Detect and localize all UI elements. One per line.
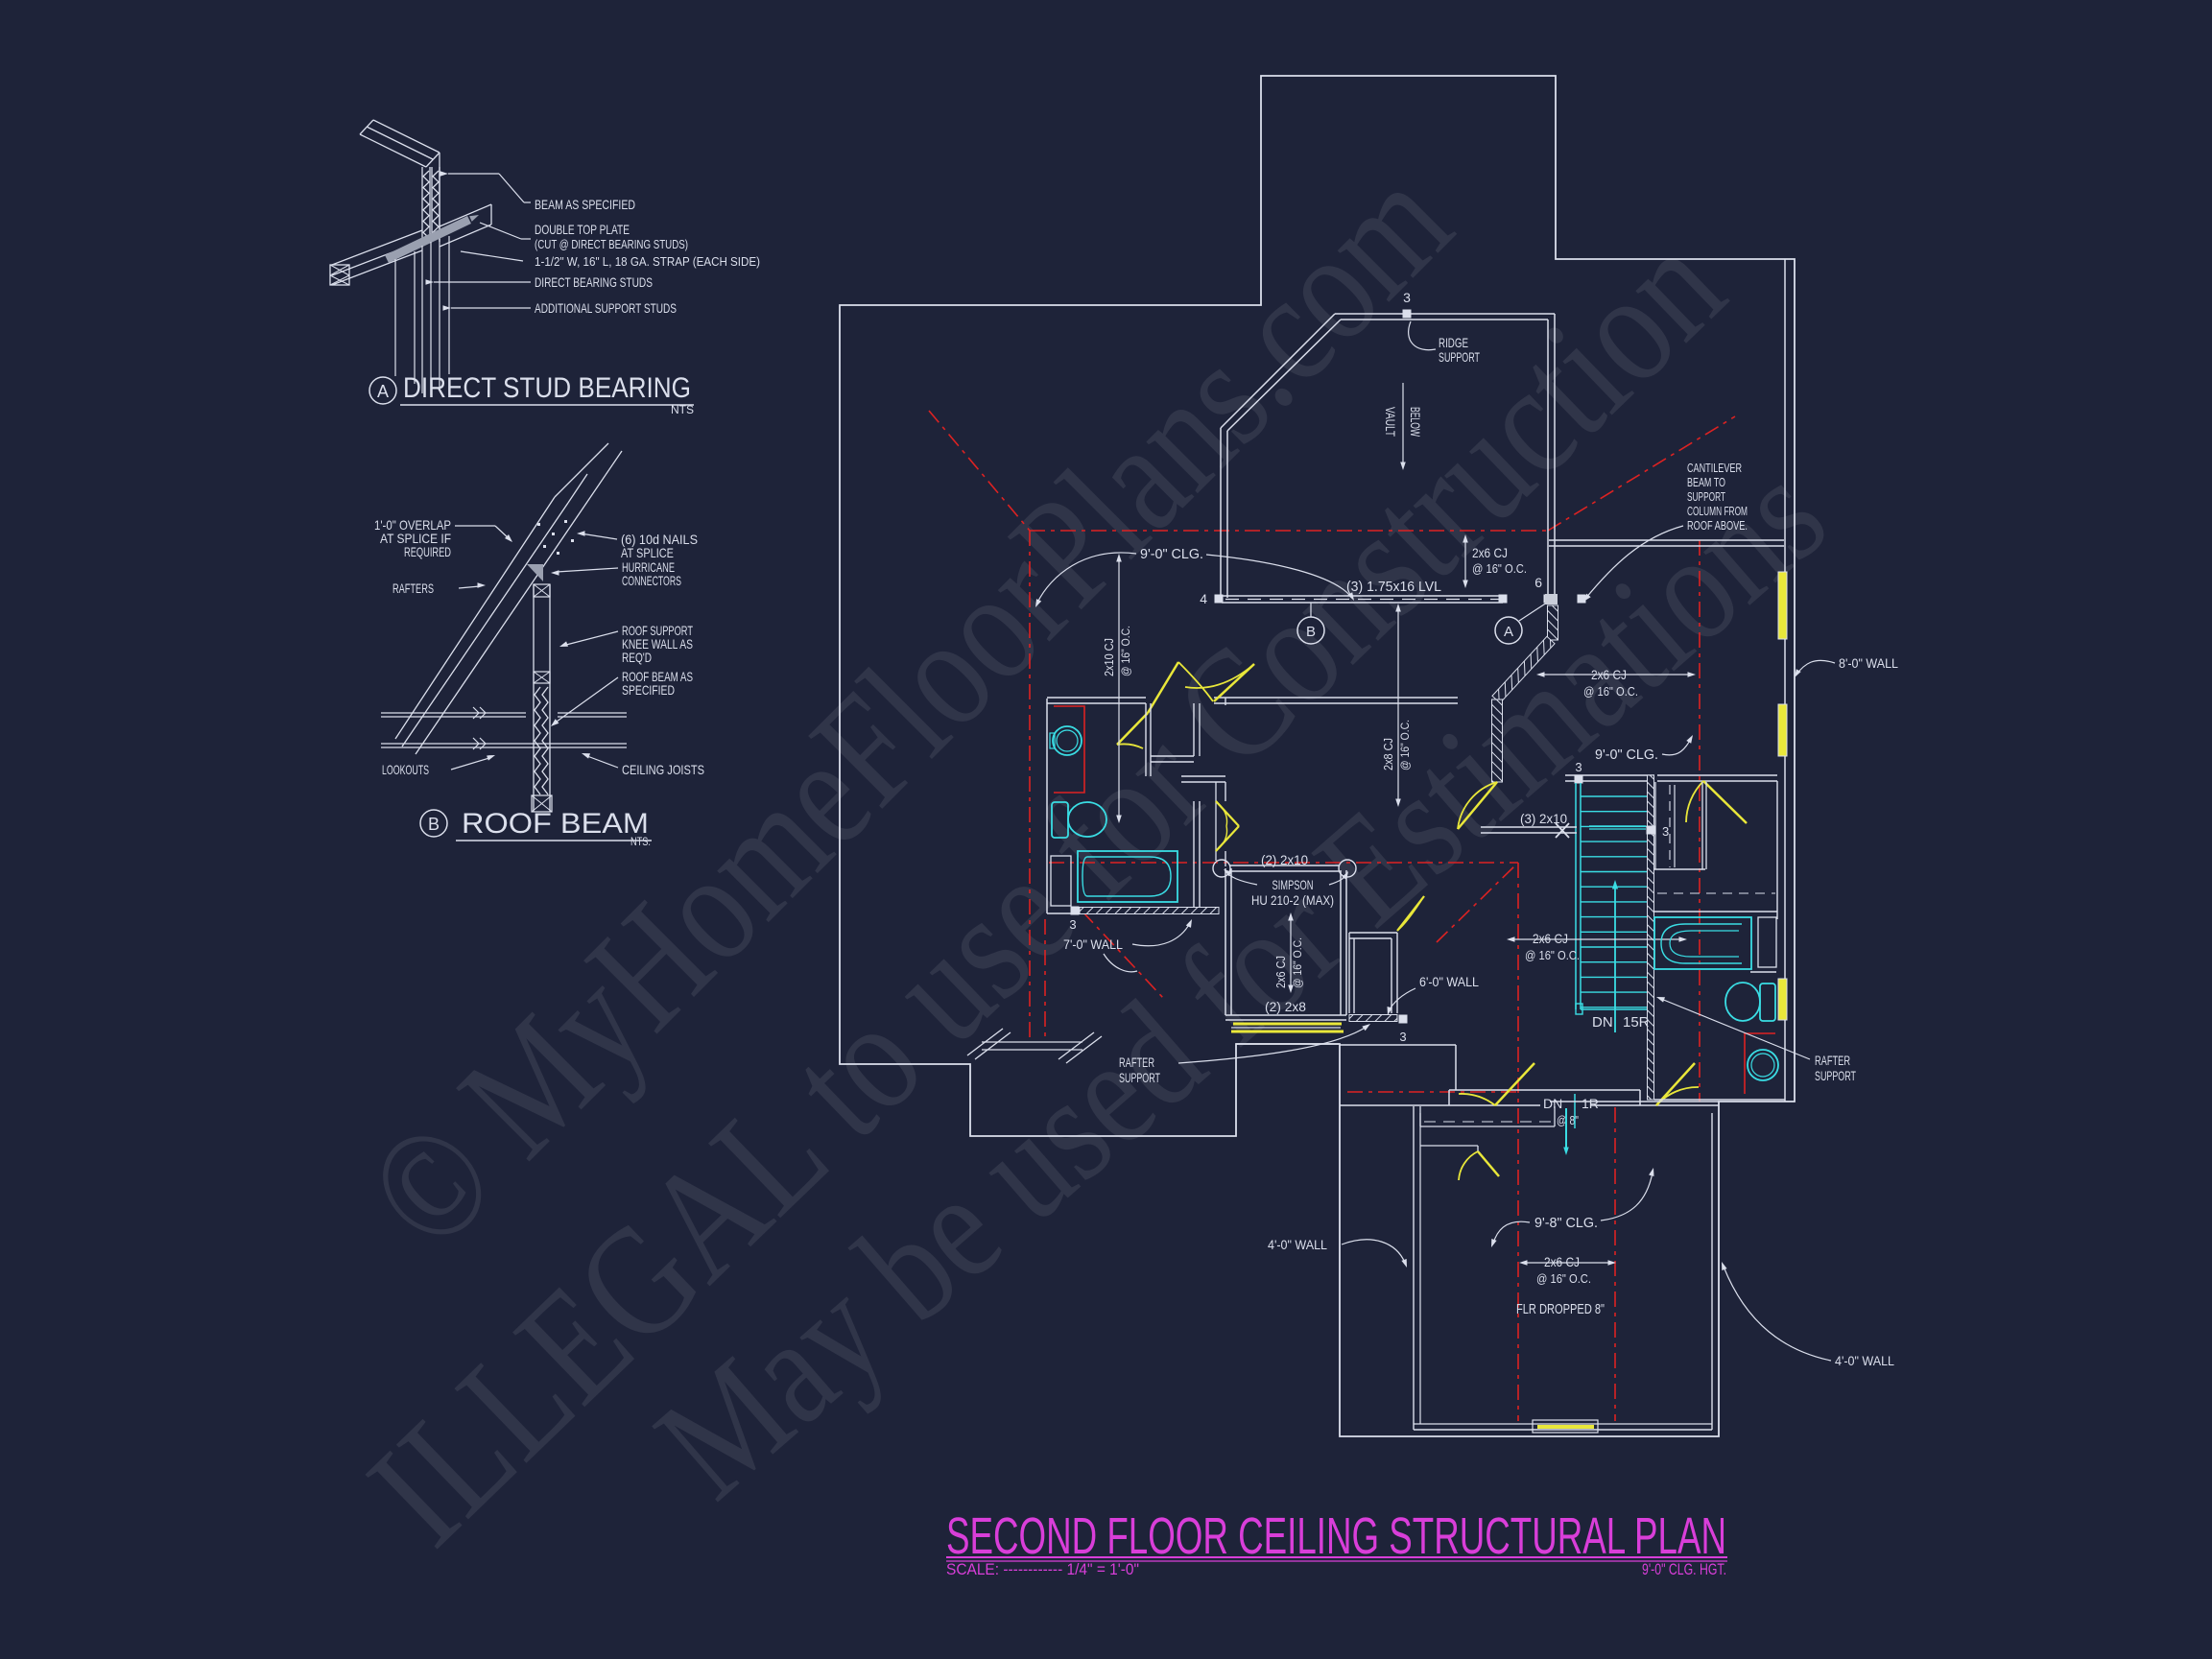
svg-text:@ 16" O.C.: @ 16" O.C.	[1536, 1271, 1591, 1286]
svg-text:RAFTER: RAFTER	[1119, 1055, 1154, 1070]
svg-text:A: A	[1504, 624, 1513, 640]
svg-text:9'-0" CLG. HGT.: 9'-0" CLG. HGT.	[1642, 1560, 1726, 1578]
svg-text:SCALE: ------------ 1/4" = 1'-: SCALE: ------------ 1/4" = 1'-0"	[946, 1560, 1139, 1578]
svg-text:DIRECT STUD BEARING: DIRECT STUD BEARING	[403, 372, 691, 404]
svg-text:4: 4	[1200, 591, 1207, 606]
svg-text:CEILING JOISTS: CEILING JOISTS	[622, 762, 704, 777]
svg-text:3: 3	[1575, 760, 1582, 774]
svg-text:3: 3	[1662, 824, 1669, 839]
svg-text:9'-0" CLG.: 9'-0" CLG.	[1595, 747, 1658, 763]
svg-text:3: 3	[1399, 1030, 1406, 1044]
svg-text:2x6 CJ: 2x6 CJ	[1472, 545, 1508, 560]
svg-text:(3) 2x10: (3) 2x10	[1520, 811, 1567, 826]
svg-text:2x8 CJ: 2x8 CJ	[1381, 738, 1395, 770]
svg-text:4'-0" WALL: 4'-0" WALL	[1268, 1237, 1327, 1252]
svg-text:2x6 CJ: 2x6 CJ	[1533, 931, 1568, 946]
svg-text:SUPPORT: SUPPORT	[1439, 349, 1480, 365]
svg-text:(2) 2x8: (2) 2x8	[1265, 999, 1306, 1014]
svg-text:@ 16" O.C.: @ 16" O.C.	[1525, 948, 1580, 962]
svg-text:RAFTER: RAFTER	[1815, 1053, 1850, 1068]
svg-text:2x6 CJ: 2x6 CJ	[1273, 956, 1288, 988]
svg-text:BEAM TO: BEAM TO	[1687, 475, 1725, 489]
svg-text:RAFTERS: RAFTERS	[392, 581, 434, 596]
svg-text:NTS: NTS	[671, 403, 694, 416]
svg-text:@ 16" O.C.: @ 16" O.C.	[1472, 561, 1527, 576]
svg-text:DIRECT BEARING STUDS: DIRECT BEARING STUDS	[535, 274, 653, 290]
svg-text:NTS.: NTS.	[630, 835, 651, 848]
svg-text:(CUT @ DIRECT BEARING STUDS): (CUT @ DIRECT BEARING STUDS)	[535, 237, 688, 251]
svg-text:15R: 15R	[1623, 1014, 1650, 1031]
svg-text:SIMPSON: SIMPSON	[1272, 877, 1314, 892]
svg-text:(2) 2x10: (2) 2x10	[1261, 852, 1308, 867]
svg-text:CONNECTORS: CONNECTORS	[622, 573, 681, 588]
svg-text:@ 16" O.C.: @ 16" O.C.	[1398, 720, 1412, 770]
svg-text:SUPPORT: SUPPORT	[1815, 1068, 1856, 1083]
svg-text:ROOF BEAM: ROOF BEAM	[462, 808, 649, 840]
svg-text:REQ'D: REQ'D	[622, 650, 652, 665]
svg-text:A: A	[377, 382, 389, 401]
svg-text:@ 16" O.C.: @ 16" O.C.	[1119, 626, 1132, 676]
svg-text:@ 16" O.C.: @ 16" O.C.	[1291, 937, 1304, 988]
svg-text:AT SPLICE: AT SPLICE	[621, 545, 674, 560]
svg-text:REQUIRED: REQUIRED	[404, 544, 451, 559]
svg-text:(3) 1.75x16 LVL: (3) 1.75x16 LVL	[1346, 579, 1441, 595]
svg-text:B: B	[1306, 624, 1316, 640]
svg-text:SUPPORT: SUPPORT	[1119, 1070, 1160, 1085]
svg-text:DN: DN	[1592, 1014, 1613, 1031]
svg-text:6'-0" WALL: 6'-0" WALL	[1419, 974, 1479, 989]
svg-text:@ 8": @ 8"	[1557, 1113, 1579, 1127]
svg-text:8'-0" WALL: 8'-0" WALL	[1839, 655, 1898, 671]
svg-text:HU 210-2 (MAX): HU 210-2 (MAX)	[1251, 892, 1334, 908]
svg-text:ROOF ABOVE.: ROOF ABOVE.	[1687, 518, 1748, 533]
svg-text:FLR DROPPED 8": FLR DROPPED 8"	[1516, 1301, 1605, 1317]
svg-text:LOOKOUTS: LOOKOUTS	[382, 762, 429, 777]
svg-text:SUPPORT: SUPPORT	[1687, 489, 1725, 504]
svg-text:6: 6	[1534, 575, 1542, 590]
svg-text:RIDGE: RIDGE	[1439, 335, 1468, 350]
svg-text:9'-8" CLG.: 9'-8" CLG.	[1534, 1215, 1598, 1231]
svg-text:VAULT: VAULT	[1383, 407, 1398, 437]
svg-text:B: B	[428, 815, 440, 834]
svg-text:4'-0" WALL: 4'-0" WALL	[1835, 1353, 1894, 1368]
svg-text:1R: 1R	[1582, 1096, 1599, 1111]
svg-text:9'-0" CLG.: 9'-0" CLG.	[1140, 546, 1203, 562]
svg-text:@ 16" O.C.: @ 16" O.C.	[1583, 684, 1638, 699]
svg-text:DOUBLE TOP PLATE: DOUBLE TOP PLATE	[535, 222, 630, 237]
svg-text:3: 3	[1403, 290, 1411, 305]
svg-text:COLUMN FROM: COLUMN FROM	[1687, 504, 1748, 518]
svg-text:7'-0" WALL: 7'-0" WALL	[1063, 936, 1123, 952]
svg-text:ADDITIONAL SUPPORT STUDS: ADDITIONAL SUPPORT STUDS	[535, 300, 677, 316]
svg-text:CANTILEVER: CANTILEVER	[1687, 461, 1742, 475]
svg-text:2x10 CJ: 2x10 CJ	[1102, 638, 1116, 676]
svg-text:DN: DN	[1543, 1096, 1562, 1111]
svg-text:3: 3	[1069, 917, 1076, 932]
svg-text:2x6 CJ: 2x6 CJ	[1544, 1254, 1580, 1269]
svg-text:SPECIFIED: SPECIFIED	[622, 682, 675, 698]
svg-text:BELOW: BELOW	[1408, 407, 1423, 437]
svg-text:1-1/2" W, 16" L, 18 GA. STRAP: 1-1/2" W, 16" L, 18 GA. STRAP (EACH SIDE…	[535, 254, 760, 269]
svg-text:BEAM AS SPECIFIED: BEAM AS SPECIFIED	[535, 197, 635, 212]
